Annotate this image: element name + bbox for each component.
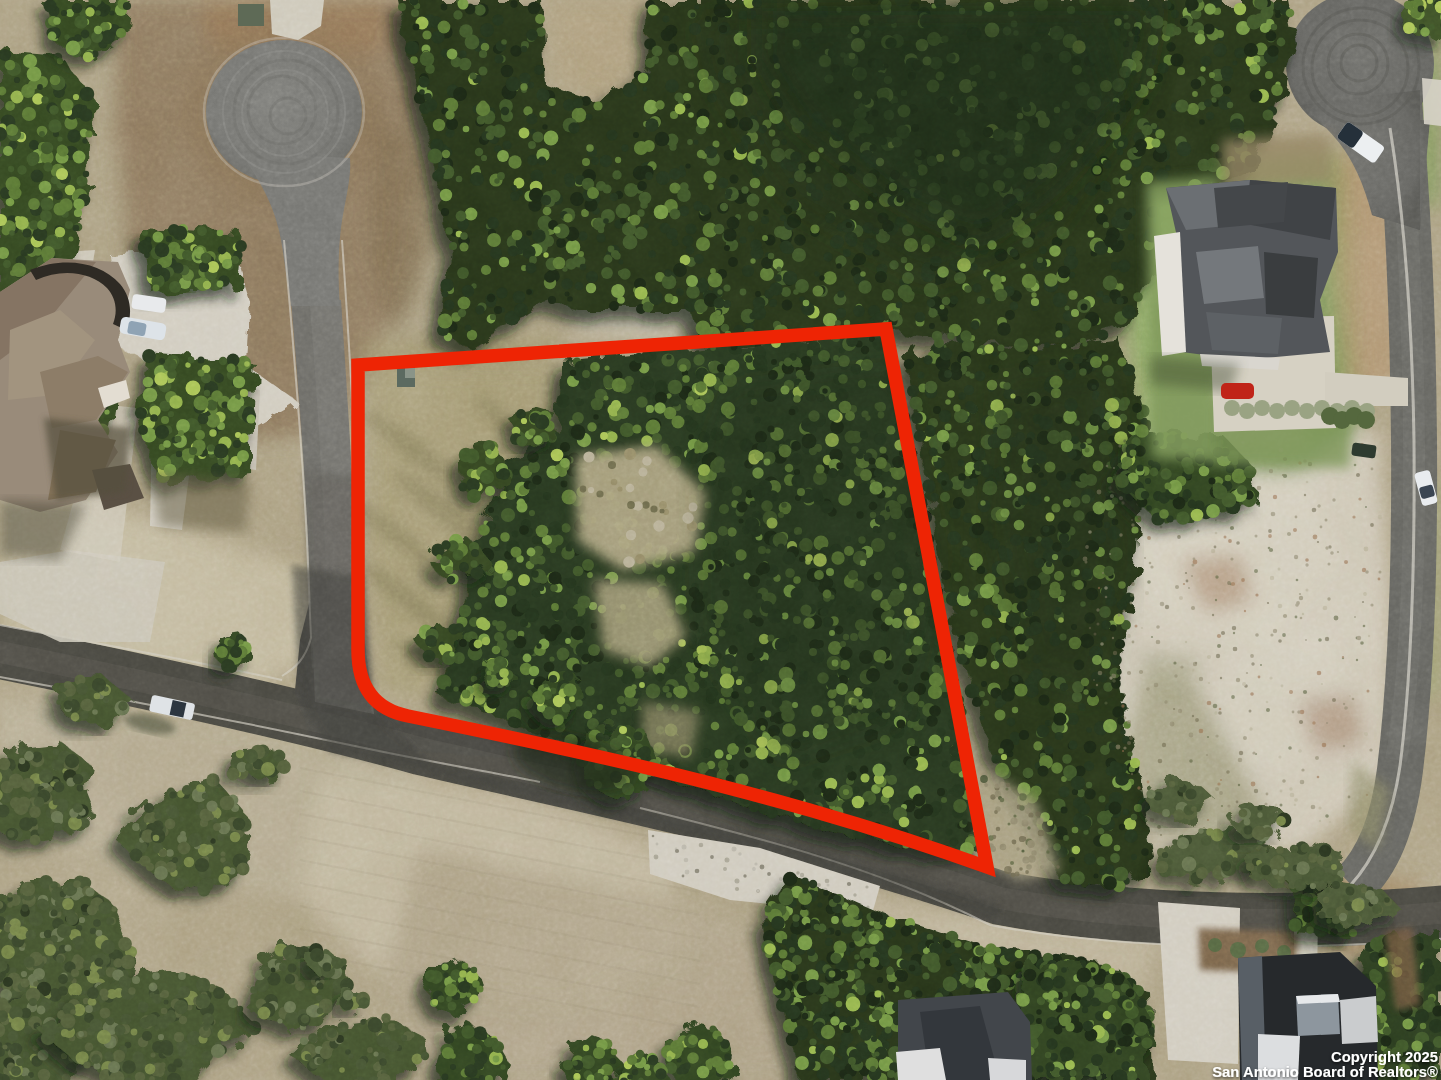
svg-text:Copyright 2025: Copyright 2025 [1331,1049,1438,1065]
svg-text:San Antonio Board of Realtors®: San Antonio Board of Realtors® [1212,1064,1438,1080]
